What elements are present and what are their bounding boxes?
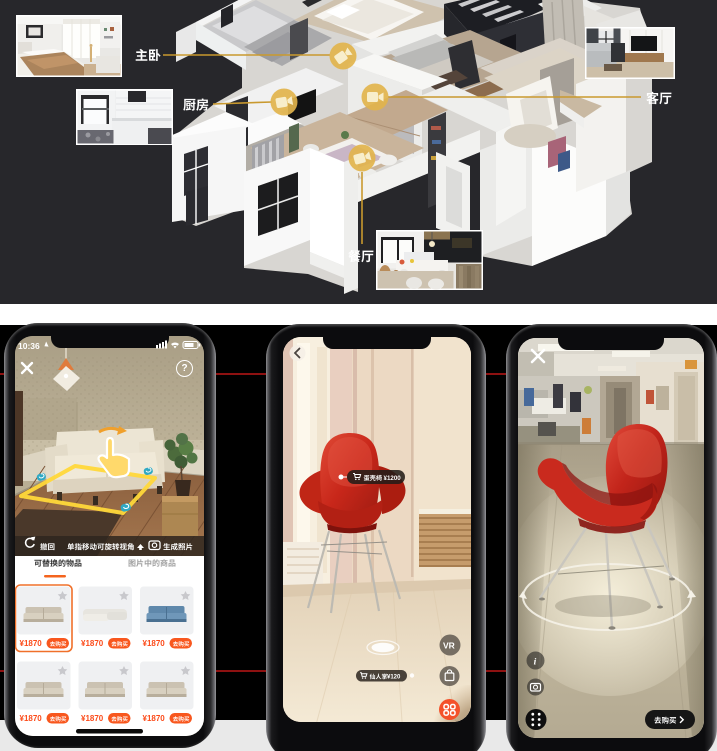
svg-text:¥1870: ¥1870 [81, 714, 104, 723]
svg-text:i: i [534, 658, 537, 668]
svg-text:10:36: 10:36 [18, 341, 40, 351]
svg-text:¥1870: ¥1870 [143, 639, 166, 648]
svg-text:VR: VR [443, 641, 455, 651]
svg-text:¥1870: ¥1870 [81, 639, 104, 648]
svg-text:¥1870: ¥1870 [20, 639, 43, 648]
svg-text:¥120: ¥120 [387, 675, 401, 681]
svg-text:¥1870: ¥1870 [20, 714, 43, 723]
svg-text:¥1870: ¥1870 [143, 714, 166, 723]
svg-text:¥1200: ¥1200 [384, 475, 402, 482]
